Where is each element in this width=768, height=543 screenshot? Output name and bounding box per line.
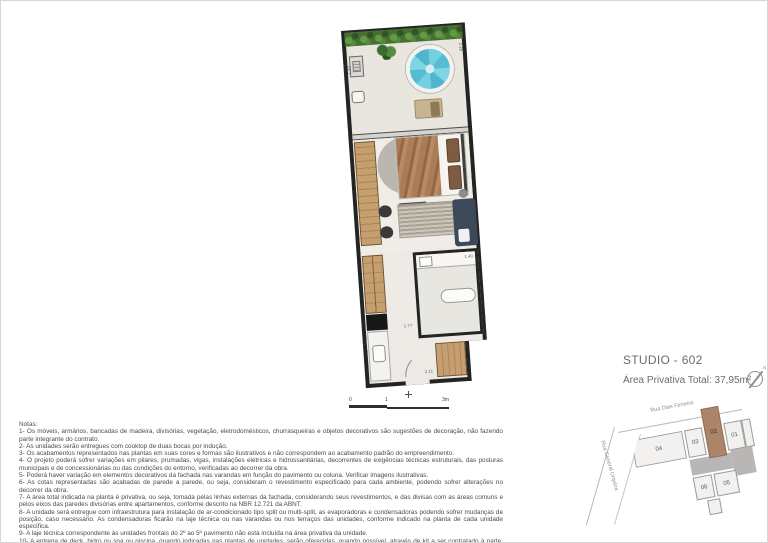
compass-north-letter: N xyxy=(763,365,766,370)
dimension-bathroom: 1.40 xyxy=(464,253,473,259)
cooktop xyxy=(366,313,388,330)
bathroom-sink xyxy=(419,256,433,267)
note-item-9: 9- A laje técnica correspondente às unid… xyxy=(19,530,503,537)
note-item-4: 4- O projeto poderá sofrer variações em … xyxy=(19,457,503,472)
note-item-7: 7- A área total indicada na planta é pri… xyxy=(19,494,503,509)
lounge-chair-back xyxy=(430,101,440,117)
kitchen-sink xyxy=(372,345,386,363)
title-block: STUDIO - 602 Área Privativa Total: 37,95… xyxy=(623,353,768,386)
dimension-bottom: 2.11 xyxy=(425,368,434,374)
location-keyplan: Rua Dias Ferreira Rua General Urquiza 04… xyxy=(596,401,768,543)
lounge-chair xyxy=(414,98,443,119)
keyplan-unit-05: 05 xyxy=(713,470,740,497)
kitchen-counter xyxy=(367,330,391,381)
street-label-dias-ferreira: Rua Dias Ferreira xyxy=(650,400,694,414)
bed xyxy=(395,133,469,200)
note-item-10: 10- A entrega de deck, hidro ou spa ou p… xyxy=(19,538,503,543)
note-item-3: 3- Os acabamentos representados nas plan… xyxy=(19,450,503,457)
scale-bar: 0 1 3m xyxy=(349,397,451,411)
note-item-5: 5- Poderá haver variação em elementos de… xyxy=(19,472,503,479)
keyplan-unit-03: 03 xyxy=(684,427,707,458)
unit-title: STUDIO - 602 xyxy=(623,353,768,367)
floor-plan-sheet: 1.40 2.29 xyxy=(0,0,768,543)
sofa xyxy=(452,198,478,246)
notes-block: Notas: 1- Os móveis, armários, bancadas … xyxy=(19,421,503,543)
entry-door-mat xyxy=(435,341,467,377)
kitchen-cabinet-wood xyxy=(362,255,387,314)
terrace-fixture xyxy=(351,91,365,104)
note-item-2: 2- As unidades serão entregues com cookt… xyxy=(19,443,503,450)
terrace-plant xyxy=(376,42,397,60)
scale-segment-1 xyxy=(349,405,387,408)
note-item-8: 8- A unidade será entregue com infraestr… xyxy=(19,509,503,531)
bathtub xyxy=(440,287,476,303)
dimension-left-top: 1.40 xyxy=(346,66,352,75)
north-compass-icon: N xyxy=(747,371,763,387)
note-item-6: 6- As cotas representadas são acabadas d… xyxy=(19,479,503,494)
keyplan-units: 04 03 02 01 06 05 xyxy=(626,400,768,535)
striped-rug xyxy=(397,200,457,238)
ac-condenser-grille xyxy=(352,61,361,73)
notes-heading: Notas: xyxy=(19,421,503,428)
scale-label-3m: 3m xyxy=(442,397,449,403)
dimension-right-top: 2.29 xyxy=(458,43,464,52)
floor-plan: 1.40 2.29 xyxy=(341,22,494,388)
dimension-hall: 1.77 xyxy=(404,323,413,329)
bed-blanket xyxy=(396,136,442,199)
entry-door-opening xyxy=(405,376,429,386)
scale-label-1: 1 xyxy=(385,397,388,403)
bed-pillow xyxy=(446,138,461,163)
keyplan-unit-06: 06 xyxy=(693,474,716,500)
note-item-1: 1- Os móveis, armários, bancadas de made… xyxy=(19,428,503,443)
keyplan-unit-04: 04 xyxy=(631,431,687,468)
bathroom: 1.40 xyxy=(413,248,484,338)
scale-segment-2 xyxy=(387,407,449,409)
pool-center xyxy=(425,64,435,74)
sofa-pillow xyxy=(458,229,470,243)
keyplan-small-cell xyxy=(707,498,723,515)
scale-label-0: 0 xyxy=(349,397,352,403)
bed-pillow xyxy=(448,165,463,190)
